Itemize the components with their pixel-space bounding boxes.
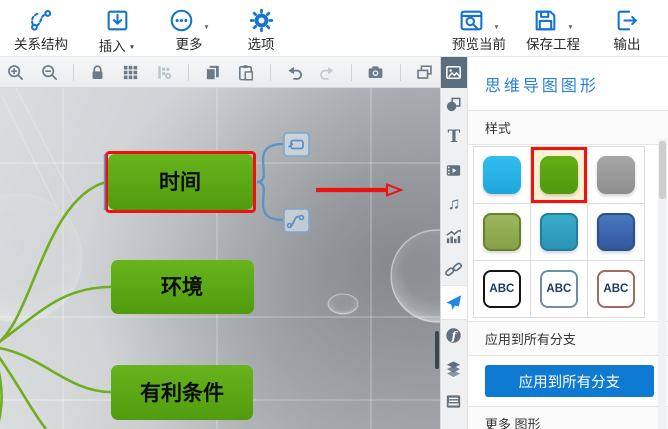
preview-current-button[interactable]: ▼ 预览当前 bbox=[448, 0, 510, 56]
style-swatch-abc-red[interactable]: ABC bbox=[588, 261, 644, 317]
sidebar-item-shape[interactable] bbox=[441, 88, 467, 121]
canvas-column: 时间 bbox=[0, 57, 440, 429]
main-area: 时间 bbox=[0, 57, 668, 429]
sidebar-item-music[interactable]: ♫ bbox=[441, 187, 467, 220]
toolbar-button-label: 保存工程 bbox=[526, 36, 580, 53]
style-swatch-abc-blue[interactable]: ABC bbox=[531, 261, 587, 317]
mindmap-canvas[interactable]: 时间 bbox=[0, 88, 440, 429]
undo-button[interactable] bbox=[283, 60, 306, 84]
style-swatch-gray[interactable] bbox=[588, 147, 644, 203]
export-button[interactable]: 输出 bbox=[596, 0, 658, 56]
swatch-shape bbox=[540, 156, 578, 194]
swatch-shape bbox=[483, 156, 521, 194]
redo-icon bbox=[318, 63, 337, 82]
export-icon bbox=[614, 7, 641, 34]
relation-structure-icon bbox=[28, 7, 55, 34]
music-icon: ♫ bbox=[448, 195, 461, 212]
redo-button[interactable] bbox=[316, 60, 339, 84]
arrange-windows-button[interactable] bbox=[413, 60, 436, 84]
card-file-icon bbox=[444, 392, 463, 411]
red-arrow-annotation bbox=[316, 185, 401, 196]
section-header-more-shapes: 更多 图形 bbox=[468, 406, 668, 429]
toolbar-separator bbox=[351, 64, 352, 81]
style-swatch-navy[interactable] bbox=[588, 204, 644, 260]
add-topic-button[interactable] bbox=[284, 133, 309, 156]
swatch-abc-label: ABC bbox=[540, 270, 578, 308]
quick-add-controls bbox=[257, 133, 309, 232]
zoom-in-icon bbox=[6, 63, 25, 82]
relation-structure-button[interactable]: 关系结构 bbox=[6, 0, 76, 56]
dropdown-caret-icon[interactable]: ▼ bbox=[203, 24, 209, 31]
sidebar-item-card-file[interactable] bbox=[441, 385, 467, 418]
swatch-abc-label: ABC bbox=[483, 270, 521, 308]
sidebar-item-video[interactable] bbox=[441, 154, 467, 187]
toolbar-button-label: 选项 bbox=[248, 36, 275, 53]
style-swatch-blue[interactable] bbox=[474, 147, 530, 203]
style-swatch-grid: ABC ABC ABC bbox=[473, 146, 645, 318]
dropdown-caret-icon[interactable]: ▼ bbox=[129, 39, 135, 56]
more-button[interactable]: ▼ 更多 bbox=[158, 0, 220, 56]
canvas-scrollbar[interactable] bbox=[435, 331, 439, 369]
shape-icon bbox=[444, 95, 463, 114]
toolbar-separator bbox=[400, 64, 401, 81]
sidebar-item-link[interactable] bbox=[441, 253, 467, 286]
swatch-shape bbox=[597, 213, 635, 251]
sidebar-item-image[interactable] bbox=[441, 57, 467, 88]
sidebar-item-layers[interactable] bbox=[441, 352, 467, 385]
sidebar-item-text[interactable]: T bbox=[441, 121, 467, 154]
zoom-in-button[interactable] bbox=[4, 60, 27, 84]
more-icon bbox=[168, 7, 195, 34]
mindmap-app: 关系结构 插入 ▼ bbox=[0, 0, 668, 429]
layers-icon bbox=[444, 359, 463, 378]
options-gear-icon bbox=[248, 7, 275, 34]
toolbar-button-label: 预览当前 bbox=[452, 36, 506, 53]
toolbar-button-label: 更多 bbox=[176, 36, 203, 53]
save-floppy-icon bbox=[532, 7, 559, 34]
mindmap-node-environment[interactable]: 环境 bbox=[111, 260, 254, 314]
main-toolbar: 关系结构 插入 ▼ bbox=[0, 0, 668, 57]
undo-icon bbox=[285, 63, 304, 82]
text-icon: T bbox=[448, 129, 461, 146]
media-sidebar: T ♫ bbox=[440, 57, 467, 429]
node-label: 时间 bbox=[159, 171, 201, 194]
swatch-shape bbox=[540, 213, 578, 251]
copy-icon bbox=[203, 63, 222, 82]
grid-button[interactable] bbox=[119, 60, 142, 84]
save-project-button[interactable]: ▼ 保存工程 bbox=[522, 0, 584, 56]
section-header-apply: 应用到所有分支 bbox=[468, 321, 668, 356]
toolbar-button-label: 关系结构 bbox=[14, 36, 68, 53]
swatch-shape bbox=[597, 156, 635, 194]
toolbar-separator bbox=[270, 64, 271, 81]
lock-icon bbox=[88, 63, 107, 82]
sidebar-item-flash[interactable]: f bbox=[441, 319, 467, 352]
canvas-toolbar bbox=[0, 57, 440, 88]
style-swatch-green-selected[interactable] bbox=[531, 147, 587, 203]
node-label: 环境 bbox=[161, 275, 203, 299]
table-settings-icon bbox=[155, 63, 174, 82]
node-label: 有利条件 bbox=[140, 381, 224, 405]
dropdown-caret-icon[interactable]: ▼ bbox=[493, 24, 499, 31]
airplane-icon bbox=[444, 293, 463, 312]
zoom-out-icon bbox=[40, 63, 59, 82]
mindmap-drawing: 时间 bbox=[0, 88, 440, 429]
panel-title: 思维导图图形 bbox=[468, 57, 668, 110]
toolbar-left-group: 关系结构 插入 ▼ bbox=[6, 0, 292, 56]
copy-button[interactable] bbox=[201, 60, 224, 84]
grid-icon bbox=[121, 63, 140, 82]
style-swatch-olive[interactable] bbox=[474, 204, 530, 260]
image-icon bbox=[444, 63, 463, 82]
toolbar-separator bbox=[188, 64, 189, 81]
shape-style-panel: 思维导图图形 样式 ABC ABC ABC 应用到所有分支 应用到所有分支 更多… bbox=[467, 57, 668, 429]
add-connector-button[interactable] bbox=[284, 209, 309, 232]
link-icon bbox=[444, 260, 463, 279]
camera-icon bbox=[366, 63, 385, 82]
chart-icon bbox=[444, 227, 463, 246]
options-button[interactable]: 选项 bbox=[230, 0, 292, 56]
style-swatch-teal[interactable] bbox=[531, 204, 587, 260]
panel-scrollbar-thumb[interactable] bbox=[659, 141, 666, 199]
zoom-out-button[interactable] bbox=[37, 60, 60, 84]
paste-button[interactable] bbox=[234, 60, 257, 84]
toolbar-button-label: 插入 bbox=[99, 38, 126, 55]
mindmap-node-conditions[interactable]: 有利条件 bbox=[111, 365, 253, 420]
section-header-style: 样式 bbox=[468, 110, 668, 145]
toolbar-separator bbox=[73, 64, 74, 81]
lock-button[interactable] bbox=[86, 60, 109, 84]
arrange-windows-icon bbox=[415, 63, 434, 82]
panel-scrollbar[interactable] bbox=[658, 139, 667, 429]
dropdown-caret-icon[interactable]: ▼ bbox=[567, 24, 573, 31]
sidebar-item-clipart[interactable] bbox=[441, 286, 467, 319]
toolbar-button-label: 输出 bbox=[614, 36, 641, 53]
flash-icon: f bbox=[444, 326, 463, 345]
apply-to-all-branches-button[interactable]: 应用到所有分支 bbox=[485, 365, 654, 397]
insert-button[interactable]: 插入 ▼ bbox=[86, 0, 148, 56]
swatch-abc-label: ABC bbox=[597, 270, 635, 308]
insert-icon bbox=[104, 7, 131, 34]
toolbar-right-group: ▼ 预览当前 ▼ 保存工程 bbox=[448, 0, 662, 56]
video-icon bbox=[444, 161, 463, 180]
screenshot-button[interactable] bbox=[364, 60, 387, 84]
preview-icon bbox=[458, 7, 485, 34]
table-settings-button[interactable] bbox=[152, 60, 175, 84]
style-swatch-abc-black[interactable]: ABC bbox=[474, 261, 530, 317]
mindmap-node-time[interactable]: 时间 bbox=[105, 153, 255, 212]
sidebar-item-chart[interactable] bbox=[441, 220, 467, 253]
paste-icon bbox=[236, 63, 255, 82]
swatch-shape bbox=[483, 213, 521, 251]
